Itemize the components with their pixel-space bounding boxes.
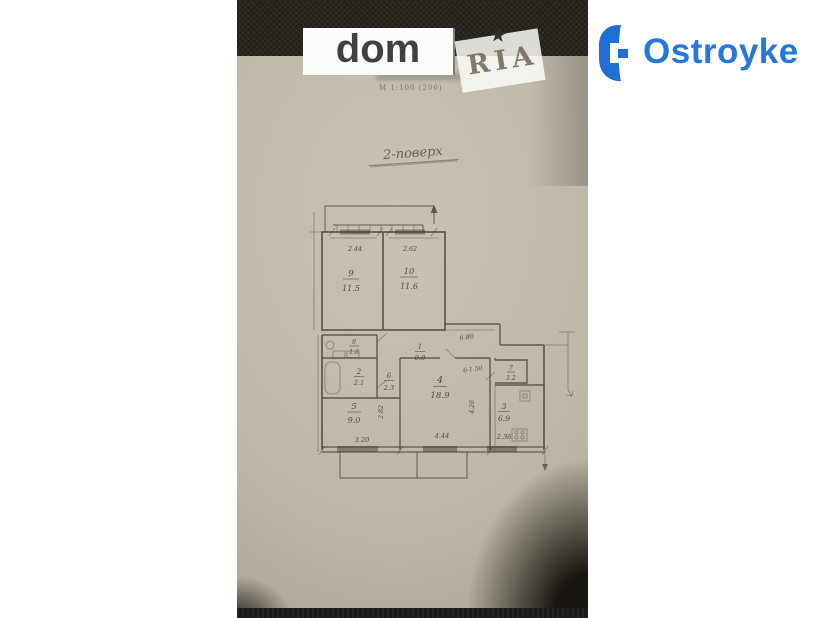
room-4-number: 4 (436, 375, 443, 386)
balcony-outline (340, 452, 467, 478)
dimension-label: 2.62 (402, 246, 417, 253)
label-fraction-bars (343, 277, 515, 412)
room-8-area: 1.6 (349, 349, 359, 356)
room-7-area: 1.2 (506, 375, 516, 382)
dom-ria-watermark: dom ★ RIA (303, 28, 539, 80)
dimension-label: 6-1.50 (463, 365, 483, 375)
window (423, 446, 457, 452)
room-5-area: 9.0 (348, 416, 361, 425)
dimension-label: 4.44 (434, 432, 450, 440)
stove-burner-icon (515, 431, 518, 434)
corner-shadow (458, 448, 588, 618)
room-7-number: 7 (509, 365, 513, 372)
window (395, 230, 425, 235)
window (340, 230, 370, 235)
ostroyke-logo: Ostroyke (597, 24, 799, 81)
dimension-labels: 2.44 2.62 6.80 6-1.50 2.82 4.26 3.20 4.4… (347, 246, 511, 444)
sink-icon (326, 341, 334, 349)
room-3-number: 3 (501, 402, 506, 411)
ria-star-icon: ★ (489, 25, 508, 46)
room-1-area: 0.9 (415, 354, 426, 362)
room-2-number: 2 (356, 368, 362, 376)
room-8-number: 8 (352, 338, 356, 346)
dimension-label: 6.80 (459, 332, 474, 341)
bathtub-icon (325, 362, 340, 394)
room-5-number: 5 (351, 402, 356, 412)
dimension-label: 2.44 (347, 246, 362, 253)
dom-logo: dom (303, 28, 455, 75)
ostroyke-icon (597, 24, 630, 81)
stove-burner-icon (515, 436, 518, 439)
floor-plan-photo: 9 11.5 10 11.6 1 0.9 8 1.6 2 2.1 6 2.3 4… (237, 0, 588, 618)
room-10-area: 11.6 (400, 282, 418, 291)
room-4-area: 18.9 (430, 391, 450, 401)
room-3-area: 6.9 (498, 414, 510, 423)
stove-icon (512, 429, 527, 441)
room-10-number: 10 (404, 267, 415, 277)
kitchen-sink-icon (523, 394, 527, 398)
dimension-label: 4.26 (469, 400, 476, 415)
window (337, 446, 378, 452)
ostroyke-wordmark: Ostroyke (643, 34, 799, 72)
dimension-label: 2.36 (496, 433, 512, 441)
washbasin-icon (333, 351, 345, 358)
scale-note: М 1:100 (200) (379, 84, 443, 92)
room-1-number: 1 (418, 343, 422, 351)
dimension-label: 2.82 (378, 405, 385, 420)
kitchen-sink-icon (520, 391, 530, 401)
room-9-area: 11.5 (342, 284, 360, 293)
page: 9 11.5 10 11.6 1 0.9 8 1.6 2 2.1 6 2.3 4… (0, 0, 824, 618)
dom-logo-text: dom (336, 29, 420, 74)
fabric-background-bottom (237, 608, 588, 618)
dimension-label: 3.20 (355, 436, 370, 444)
room-6-area: 2.3 (383, 384, 395, 392)
room-2-area: 2.1 (353, 379, 365, 387)
stove-burner-icon (521, 431, 524, 434)
stove-burner-icon (521, 436, 524, 439)
room-6-number: 6 (387, 372, 392, 380)
room-9-number: 9 (348, 269, 354, 279)
